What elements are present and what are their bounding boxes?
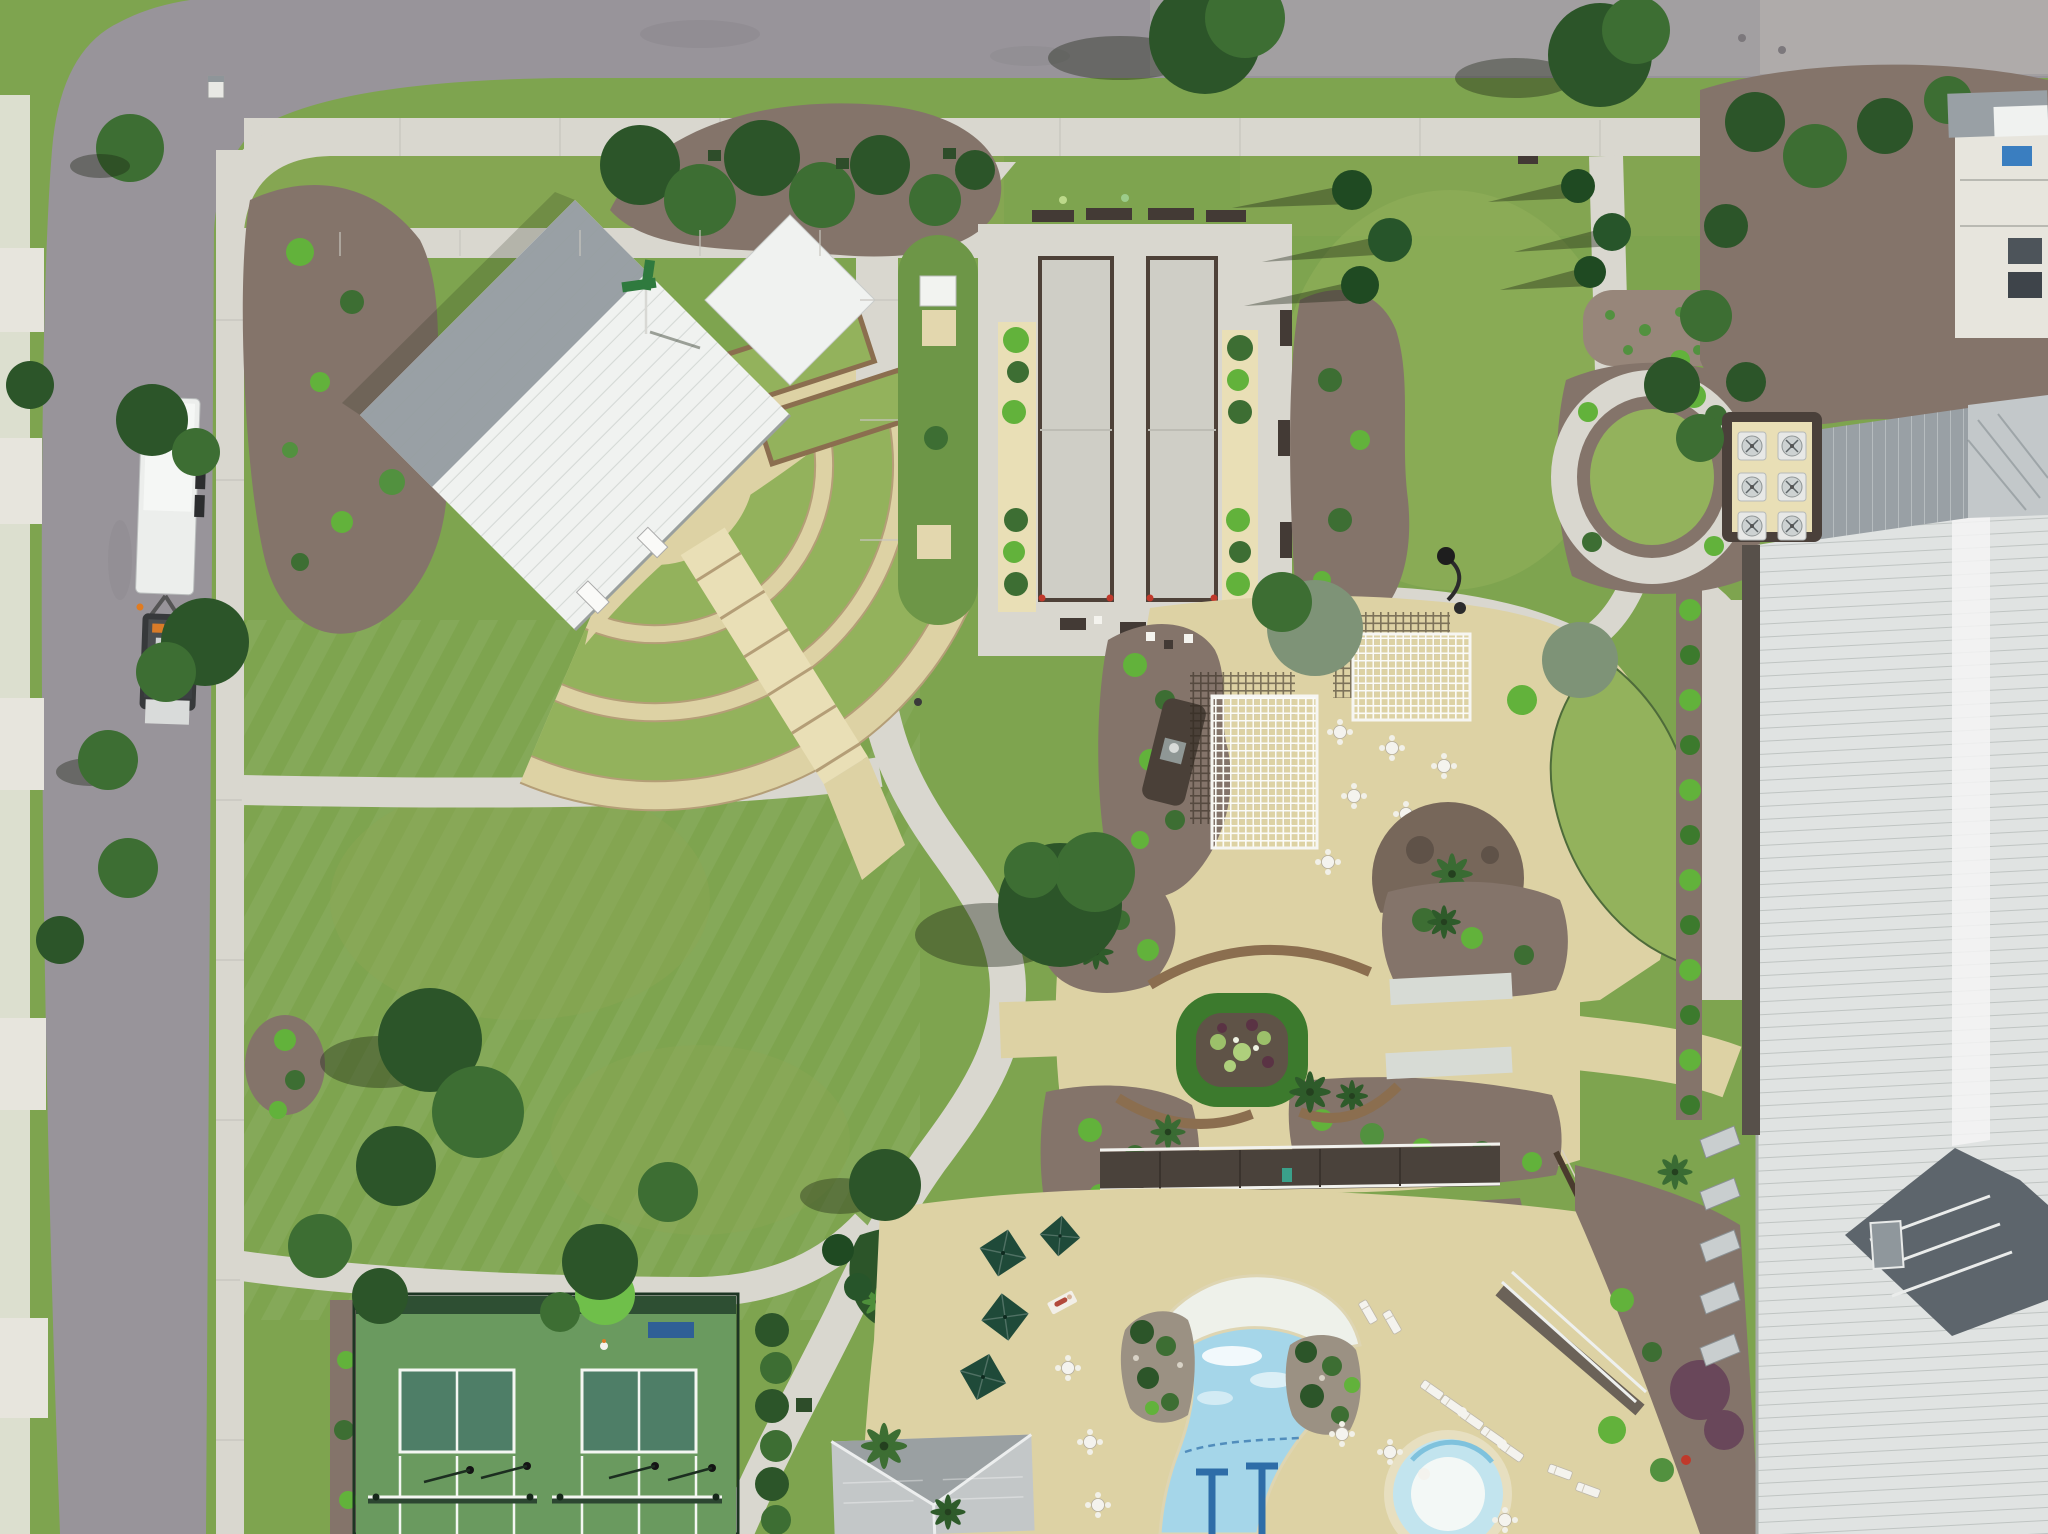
garden-bridge [1100, 1144, 1500, 1192]
person [1121, 194, 1129, 202]
lawn-bench [1518, 156, 1538, 164]
clubhouse-west-walk [1698, 600, 1742, 1000]
clubhouse-porch [1742, 545, 1760, 1135]
left-road-sidewalk [216, 150, 244, 1534]
person-on-path [914, 698, 922, 706]
court-banner [648, 1322, 694, 1338]
driveway-apron [0, 248, 44, 332]
bocce-area [978, 194, 1292, 656]
pergola-south [1212, 696, 1317, 848]
palm-tree [930, 1494, 965, 1529]
horseshoe-pit-south [917, 525, 951, 559]
overhanging-tree [352, 1268, 408, 1324]
bocce-court-1 [1040, 258, 1112, 600]
horseshoe-pit-north [922, 310, 956, 346]
crape-myrtle-tree [1542, 622, 1618, 698]
rock-island-west [1121, 1311, 1195, 1422]
pool-house [831, 1435, 1034, 1534]
tennis-courts [330, 1265, 738, 1534]
garden-west-spur [999, 998, 1131, 1059]
palm-tree [1150, 1114, 1185, 1149]
tennis-player [600, 1342, 608, 1350]
rock-island-east [1286, 1335, 1361, 1435]
service-yard [1947, 90, 2048, 338]
mail-kiosk [208, 76, 224, 98]
central-planter [1176, 993, 1308, 1107]
equipment-shed [920, 276, 956, 306]
aerial-photo-svg: Aerial drone view of a community amenity… [0, 0, 2048, 1534]
horseshoe-lawn [898, 235, 978, 625]
bocce-court-2 [1148, 258, 1216, 600]
aerial-photo: Aerial drone view of a community amenity… [0, 0, 2048, 1534]
palm-tree [1289, 1071, 1331, 1113]
pergola-north [1353, 634, 1470, 720]
porch-bed [1676, 590, 1702, 1120]
roof-dormer [1870, 1221, 1903, 1269]
person [1059, 196, 1067, 204]
palm-tree [861, 1423, 907, 1469]
teal-object [1282, 1168, 1292, 1182]
pool-equipment-box [796, 1398, 812, 1412]
blue-dumpster [2002, 146, 2032, 166]
hvac-pad [1722, 412, 1822, 542]
roof-ridge-strip [1952, 512, 1990, 1146]
